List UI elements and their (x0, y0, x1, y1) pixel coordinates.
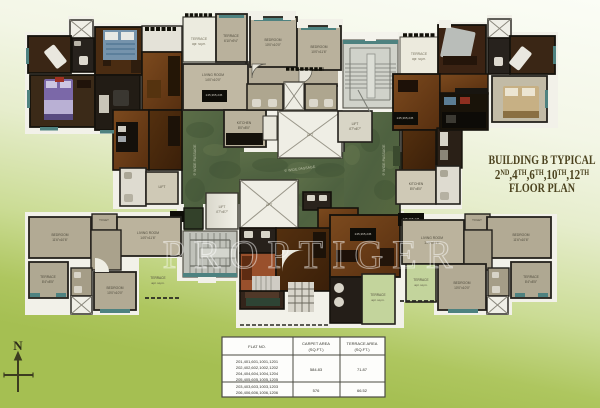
svg-text:LIFT: LIFT (159, 185, 166, 189)
svg-text:TERRACE: TERRACE (40, 275, 57, 279)
svg-text:6'10"x9'4": 6'10"x9'4" (224, 39, 238, 43)
svg-text:8'0"x8'0": 8'0"x8'0" (410, 187, 422, 191)
svg-text:TERRACE: TERRACE (191, 37, 208, 41)
svg-text:LIFT: LIFT (307, 133, 314, 137)
svg-text:202,402,602,1002,1202: 202,402,602,1002,1202 (236, 365, 279, 370)
svg-text:245,365,245: 245,365,245 (206, 93, 223, 97)
svg-text:14'0"x11'6": 14'0"x11'6" (140, 236, 155, 240)
svg-text:CARPET AREA: CARPET AREA (302, 341, 330, 346)
svg-text:4'7"x6'7": 4'7"x6'7" (216, 210, 228, 214)
svg-text:LIFT: LIFT (352, 122, 359, 126)
svg-text:11'6"x10'6": 11'6"x10'6" (52, 238, 67, 242)
svg-text:9' WIDE PASSAGE: 9' WIDE PASSAGE (193, 144, 197, 176)
svg-text:204,404,604,1004,1204: 204,404,604,1004,1204 (236, 371, 279, 376)
svg-text:apr. sq.m.: apr. sq.m. (192, 42, 206, 46)
svg-text:8'4"x8'5": 8'4"x8'5" (525, 280, 537, 284)
svg-text:LIVING ROOM: LIVING ROOM (202, 73, 224, 77)
svg-text:BEDROOM: BEDROOM (106, 286, 123, 290)
svg-text:BEDROOM: BEDROOM (310, 45, 327, 49)
svg-text:BEDROOM: BEDROOM (453, 281, 470, 285)
svg-text:TERRACE AREA: TERRACE AREA (347, 341, 378, 346)
svg-text:9' WIDE PASSAGE: 9' WIDE PASSAGE (382, 144, 386, 176)
svg-text:LIFT: LIFT (219, 205, 226, 209)
svg-text:TERRACE: TERRACE (523, 275, 540, 279)
svg-text:8'4"x8'5": 8'4"x8'5" (42, 280, 54, 284)
svg-text:apr. sq.m.: apr. sq.m. (151, 281, 164, 285)
svg-text:576: 576 (313, 388, 320, 393)
svg-text:PROPTIGER: PROPTIGER (163, 232, 462, 277)
svg-text:71.87: 71.87 (357, 367, 368, 372)
svg-text:TOILET: TOILET (472, 218, 482, 222)
svg-text:11'6"x10'6": 11'6"x10'6" (513, 238, 528, 242)
svg-text:TERRACE: TERRACE (413, 278, 428, 282)
svg-text:BEDROOM: BEDROOM (512, 233, 529, 237)
svg-text:14'0"x10'0": 14'0"x10'0" (205, 78, 221, 82)
svg-text:LIFT: LIFT (266, 203, 273, 207)
svg-text:4'7"x6'7": 4'7"x6'7" (349, 127, 361, 131)
svg-text:205,405,605,1005,1205: 205,405,605,1005,1205 (236, 377, 279, 382)
svg-text:584.83: 584.83 (310, 367, 323, 372)
svg-text:N: N (13, 338, 23, 353)
svg-text:BUILDING B TYPICAL: BUILDING B TYPICAL (489, 152, 596, 167)
svg-text:apr. sq.m.: apr. sq.m. (414, 283, 427, 287)
svg-text:10'0"x10'0": 10'0"x10'0" (265, 43, 281, 47)
svg-text:BEDROOM: BEDROOM (264, 38, 281, 42)
svg-text:245,365,245: 245,365,245 (397, 116, 414, 120)
svg-text:TOILET: TOILET (99, 218, 109, 222)
svg-text:KITCHEN: KITCHEN (409, 182, 424, 186)
svg-text:201,401,601,1001,1201: 201,401,601,1001,1201 (236, 359, 279, 364)
svg-text:10'0"x10'0": 10'0"x10'0" (107, 291, 123, 295)
svg-text:FLOOR PLAN: FLOOR PLAN (509, 181, 575, 195)
svg-text:(SQ.FT.): (SQ.FT.) (354, 347, 370, 352)
svg-text:KITCHEN: KITCHEN (237, 121, 252, 125)
svg-text:66.52: 66.52 (357, 388, 368, 393)
svg-text:8'0"x8'0": 8'0"x8'0" (238, 126, 250, 130)
svg-text:TERRACE: TERRACE (370, 293, 385, 297)
svg-text:FLAT NO.: FLAT NO. (248, 344, 266, 349)
svg-text:10'0"x10'0": 10'0"x10'0" (454, 286, 470, 290)
svg-text:10'0"x11'6": 10'0"x11'6" (311, 50, 326, 54)
svg-text:LIVING ROOM: LIVING ROOM (137, 231, 159, 235)
svg-text:apr. sq.m.: apr. sq.m. (371, 298, 384, 302)
svg-text:BEDROOM: BEDROOM (51, 233, 68, 237)
svg-text:apr. sq.m.: apr. sq.m. (412, 57, 426, 61)
svg-text:206,406,606,1006,1206: 206,406,606,1006,1206 (236, 390, 279, 395)
svg-text:203,403,603,1003,1203: 203,403,603,1003,1203 (236, 384, 279, 389)
svg-text:TERRACE: TERRACE (223, 34, 240, 38)
svg-text:(SQ.FT.): (SQ.FT.) (308, 347, 324, 352)
svg-text:TERRACE: TERRACE (411, 52, 428, 56)
